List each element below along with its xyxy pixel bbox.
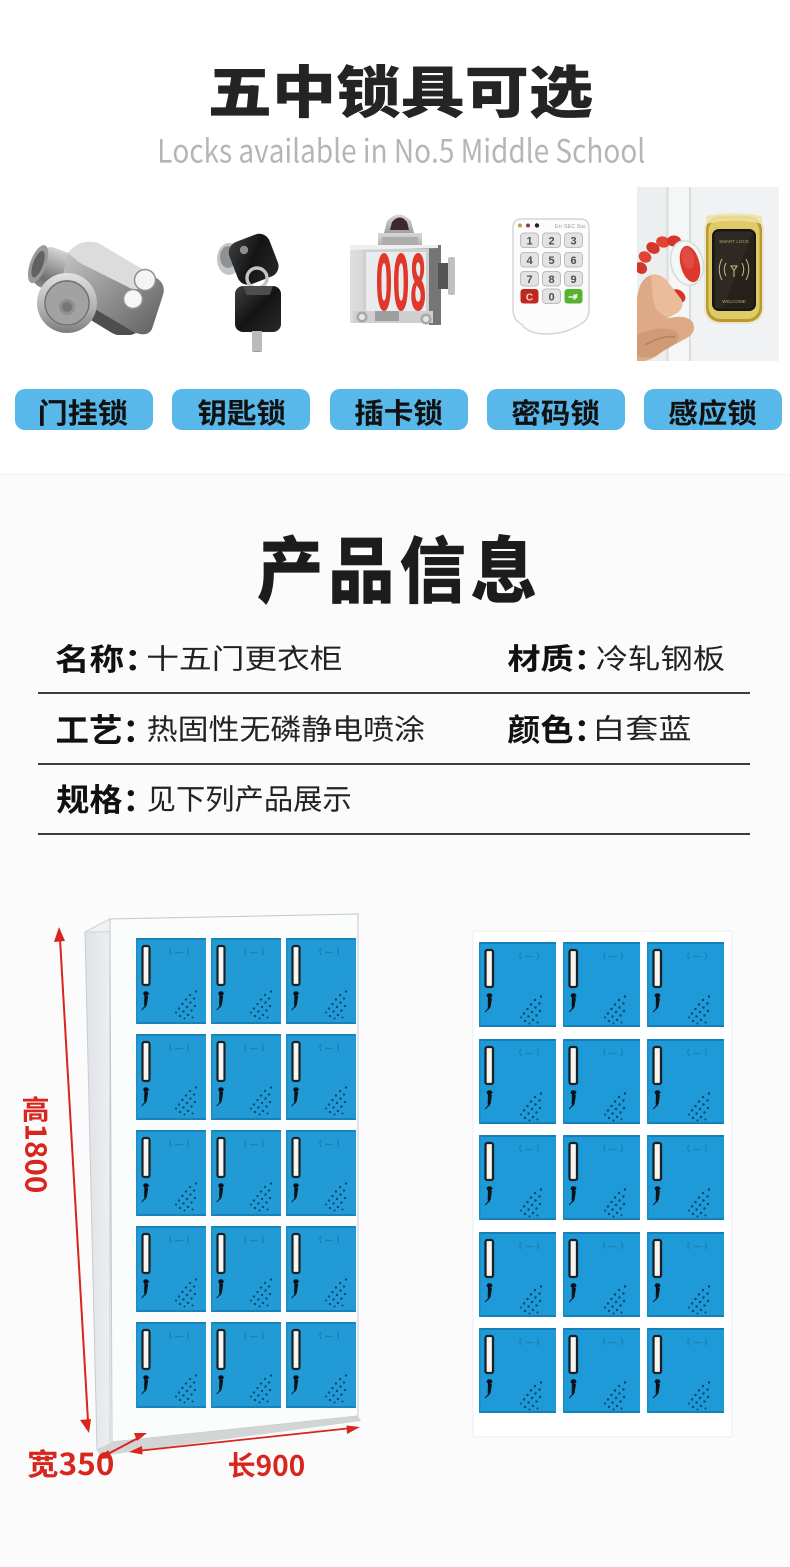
svg-text:2: 2 bbox=[548, 236, 554, 248]
svg-text:6: 6 bbox=[570, 255, 576, 267]
svg-text:0: 0 bbox=[548, 292, 554, 304]
svg-text:5: 5 bbox=[548, 255, 554, 267]
svg-text:SMART LOCK: SMART LOCK bbox=[719, 239, 750, 244]
svg-text:Err SEC Suc: Err SEC Suc bbox=[555, 224, 586, 230]
svg-text:C: C bbox=[526, 293, 533, 304]
svg-text:7: 7 bbox=[526, 274, 532, 286]
svg-text:4: 4 bbox=[526, 255, 533, 267]
svg-text:3: 3 bbox=[570, 236, 576, 248]
svg-text:WELCOME: WELCOME bbox=[722, 299, 746, 304]
svg-text:8: 8 bbox=[548, 274, 554, 286]
svg-text:9: 9 bbox=[570, 274, 576, 286]
svg-text:1: 1 bbox=[526, 236, 532, 248]
